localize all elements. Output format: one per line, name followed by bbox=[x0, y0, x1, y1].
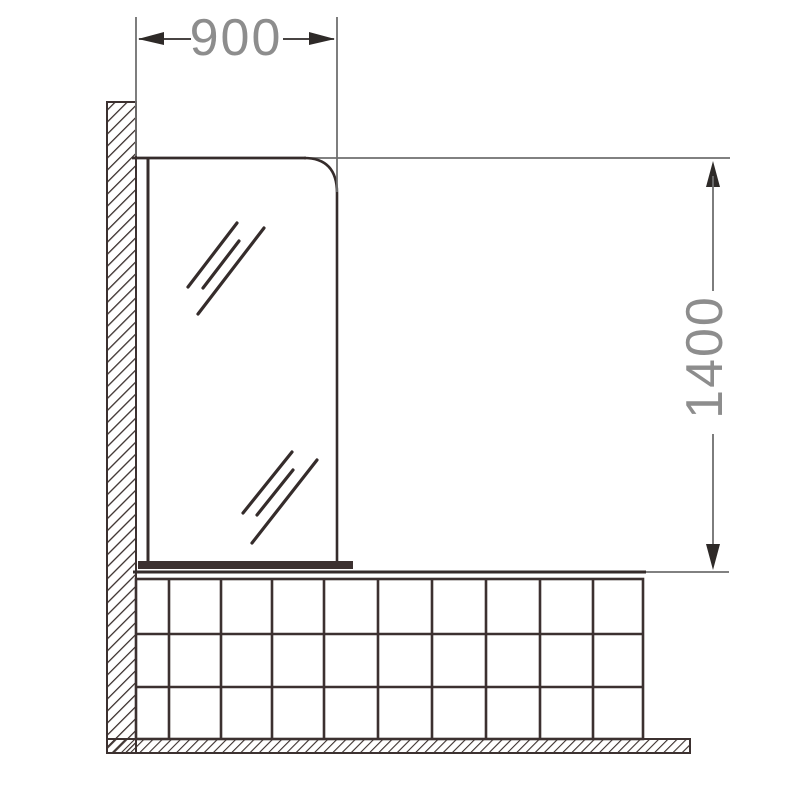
width-arrow-right-icon bbox=[309, 32, 335, 45]
width-arrow-left-icon bbox=[138, 32, 164, 45]
glass-reflection-marks bbox=[188, 223, 317, 543]
glass-shower-screen bbox=[132, 158, 730, 569]
screen-curved-right-edge bbox=[304, 158, 337, 561]
technical-drawing-page: 900 1400 bbox=[0, 0, 800, 800]
tile-grid-horizontal-lines bbox=[136, 634, 643, 687]
height-dimension-label: 1400 bbox=[676, 295, 734, 419]
bath-screen-elevation-diagram: 900 1400 bbox=[0, 0, 800, 800]
wall-hatch bbox=[107, 102, 136, 753]
width-dimension-label: 900 bbox=[190, 9, 283, 67]
tile-grid-vertical-lines bbox=[169, 579, 593, 739]
height-dimension: 1400 bbox=[676, 161, 734, 570]
floor-hatch bbox=[107, 739, 690, 753]
bath-tile-panel bbox=[133, 572, 729, 739]
floor bbox=[107, 739, 690, 753]
screen-bottom-rail bbox=[138, 561, 353, 569]
wall bbox=[107, 102, 136, 753]
width-dimension: 900 bbox=[136, 9, 337, 192]
height-arrow-down-icon bbox=[706, 544, 720, 570]
tile-panel-border bbox=[136, 579, 643, 739]
